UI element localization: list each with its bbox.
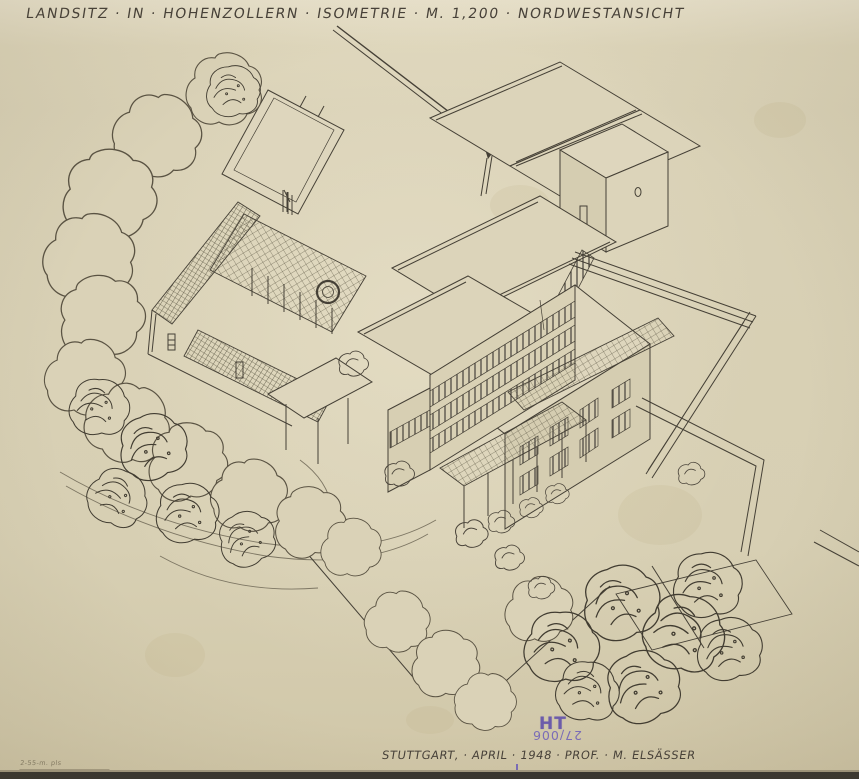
scan-bottom-edge xyxy=(0,770,859,779)
drawing-caption: STUTTGART, · APRIL · 1948 · PROF. · M. E… xyxy=(381,748,793,762)
archive-stamp-number: 27/006 xyxy=(534,728,582,743)
pergola-trellis xyxy=(210,214,366,332)
scanned-drawing-sheet: LANDSITZ · IN · HOHENZOLLERN · ISOMETRIE… xyxy=(0,0,859,779)
pencil-inventory-note: 2-55-m. pls xyxy=(19,759,110,770)
isometric-drawing xyxy=(0,0,859,779)
drawing-title: LANDSITZ · IN · HOHENZOLLERN · ISOMETRIE… xyxy=(25,6,840,22)
